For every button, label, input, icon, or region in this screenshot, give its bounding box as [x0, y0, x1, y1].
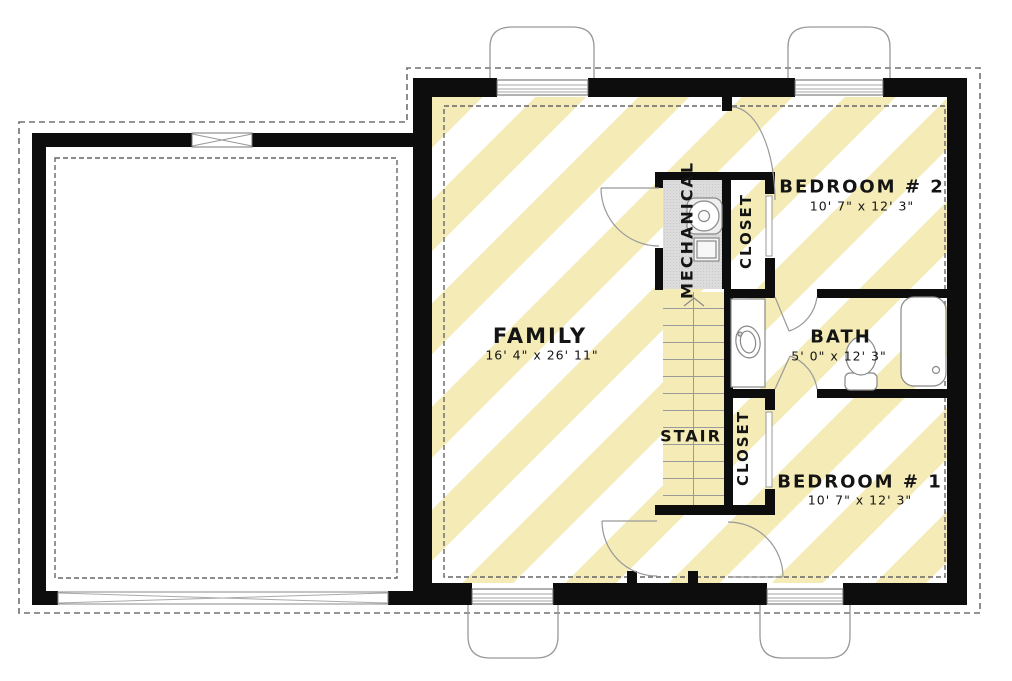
window-top-left [497, 80, 588, 95]
window-top-right [795, 80, 883, 95]
closet-top-label: CLOSET [737, 193, 755, 269]
bedroom2-label: BEDROOM # 2 [779, 177, 944, 198]
window-bottom-right [767, 589, 843, 604]
window-well-top-left [490, 27, 594, 78]
bath-dims: 5' 0" x 12' 3" [791, 349, 886, 364]
closet-bottom-label: CLOSET [734, 410, 752, 486]
bedroom2-dims: 10' 7" x 12' 3" [810, 199, 914, 214]
garage-walls [32, 133, 413, 605]
stair-label: STAIR [660, 427, 722, 446]
bedroom1-dims: 10' 7" x 12' 3" [808, 493, 912, 508]
garage-window [192, 133, 252, 147]
window-bottom-left [472, 589, 553, 604]
bath-label: BATH [810, 327, 872, 348]
family-label: FAMILY [493, 324, 587, 348]
stair-floor [663, 292, 724, 505]
mechanical-label: MECHANICAL [678, 161, 697, 299]
stair-center-line [693, 292, 694, 505]
garage-inner-dashed [55, 158, 397, 578]
window-well-bottom-left [468, 605, 558, 658]
garage-door [58, 592, 388, 604]
family-dims: 16' 4" x 26' 11" [485, 348, 598, 363]
window-well-bottom-right [760, 605, 850, 658]
bedroom1-label: BEDROOM # 1 [777, 472, 942, 493]
floor-plan: FAMILY 16' 4" x 26' 11" MECHANICAL CLOSE… [0, 0, 1012, 681]
window-well-top-right [788, 27, 890, 78]
